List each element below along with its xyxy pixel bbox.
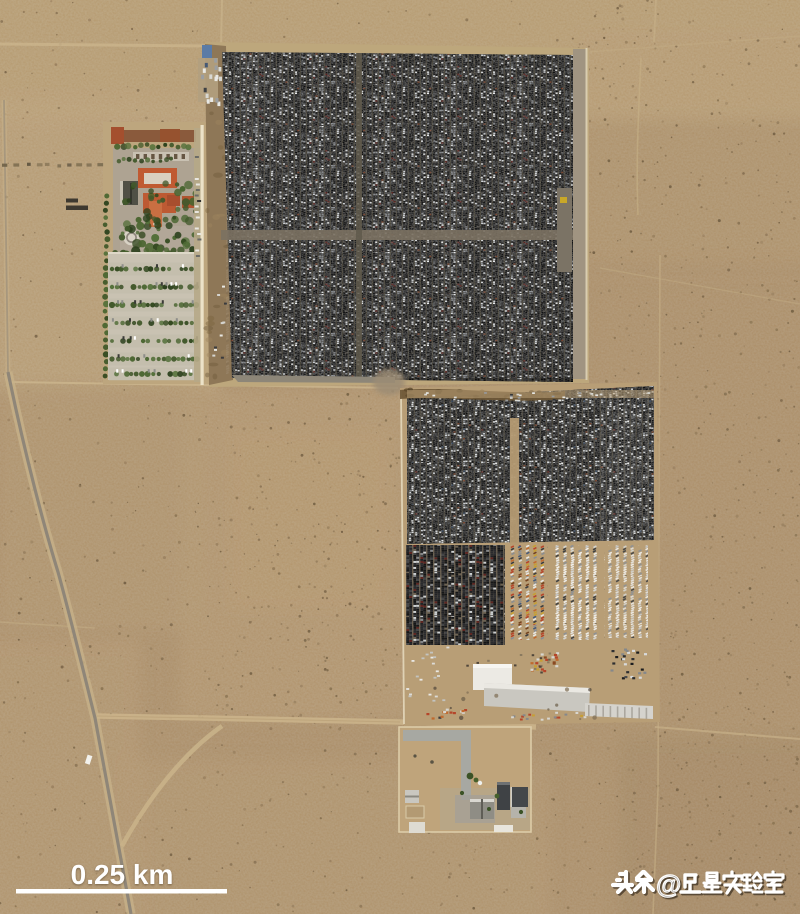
svg-text:0.25 km: 0.25 km — [71, 859, 174, 890]
svg-text:@: @ — [656, 869, 681, 899]
